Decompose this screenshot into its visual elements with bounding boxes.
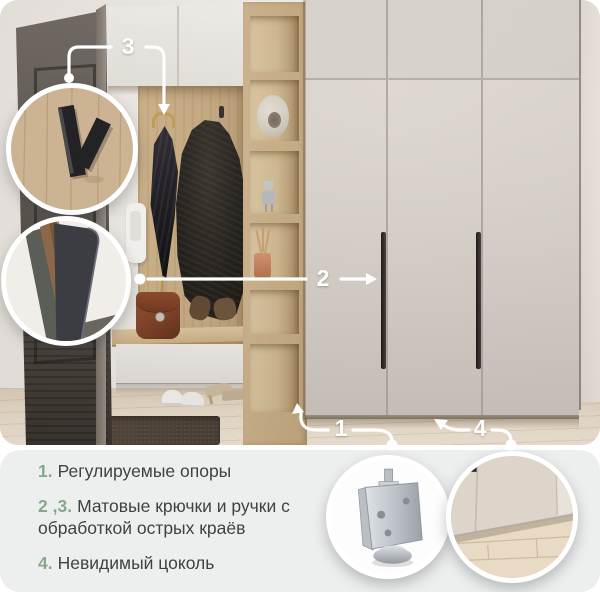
wardrobe-handle-1 — [381, 232, 386, 369]
robot-figurine-leg — [265, 204, 267, 212]
foot-closeup-inset — [326, 455, 450, 579]
feature-number-4: 4. — [38, 553, 53, 573]
leather-bag-flap — [136, 292, 180, 313]
robot-figurine-body — [262, 191, 275, 204]
handle-closeup-inset — [1, 216, 131, 346]
feature-item-3: 4.Невидимый цоколь — [38, 553, 383, 575]
product-infographic: 1.Регулируемые опоры 2 ,3.Матовые крючки… — [0, 0, 600, 592]
reed-diffuser-bottle — [254, 253, 271, 279]
feature-item-1: 1.Регулируемые опоры — [38, 461, 383, 483]
diffuser-reed-2 — [262, 228, 264, 252]
matte-hook-icon — [11, 88, 133, 210]
donut-vase-hole — [268, 112, 281, 128]
wardrobe-floor-shadow — [305, 419, 579, 429]
intercom-handset — [126, 203, 146, 263]
white-sneaker-2 — [181, 392, 205, 408]
column-wardrobe-seam — [303, 0, 306, 420]
wardrobe-doors — [305, 0, 579, 419]
umbrella-handle — [152, 112, 175, 128]
feature-number-1: 1. — [38, 461, 53, 481]
open-shelf-column — [243, 2, 307, 445]
white-sneaker — [162, 390, 183, 405]
intercom-detail — [130, 211, 141, 241]
door-seam-horizontal — [305, 78, 579, 80]
entry-door-ribbed-texture — [20, 334, 108, 445]
invisible-plinth-icon — [451, 456, 573, 578]
wardrobe-side-panel — [581, 0, 600, 402]
shelf-cubby-3 — [250, 151, 299, 214]
bag-clasp — [155, 312, 165, 322]
shelf-cubby-6 — [250, 344, 299, 412]
feature-number-2: 2 ,3. — [38, 496, 72, 516]
cabinet-door-seam — [177, 6, 179, 86]
shelf-cubby-1 — [250, 16, 299, 72]
door-seam-2 — [481, 0, 483, 419]
bench-drawer — [116, 344, 245, 384]
wall-hook — [219, 106, 224, 118]
wardrobe — [305, 0, 600, 424]
robot-figurine-leg-2 — [271, 204, 273, 212]
wardrobe-top-cabinets — [305, 0, 579, 78]
robot-figurine-head — [264, 181, 273, 190]
feature-text-1: Регулируемые опоры — [58, 461, 232, 481]
feature-text-4: Невидимый цоколь — [58, 553, 215, 573]
plinth-closeup-inset — [446, 451, 578, 583]
adjustable-foot-icon — [331, 460, 445, 574]
feature-text-2: Матовые крючки и ручки с обработкой остр… — [38, 496, 290, 538]
handle-edge-icon — [6, 221, 126, 341]
hook-closeup-inset — [6, 83, 138, 215]
upper-cabinets — [108, 6, 245, 86]
shelf-cubby-5 — [250, 290, 299, 334]
wardrobe-handle-2 — [476, 232, 481, 369]
door-seam-1 — [386, 0, 388, 419]
